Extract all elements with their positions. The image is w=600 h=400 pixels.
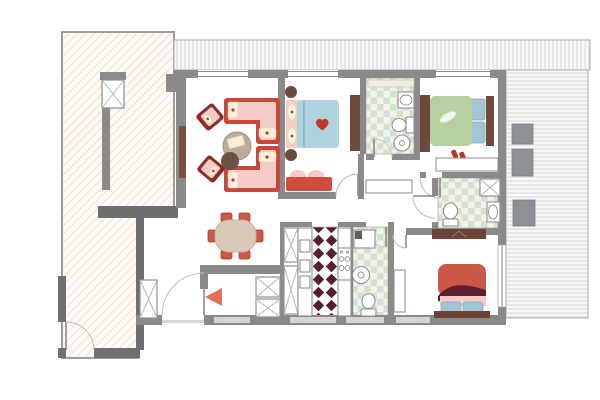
planter-box [512, 124, 533, 144]
wardrobe [350, 95, 360, 151]
entrance-arrow [205, 288, 222, 306]
shelf [368, 80, 414, 87]
dining-area [208, 213, 263, 259]
deck-top [174, 40, 590, 70]
dining-table [215, 220, 256, 252]
shower-stall [480, 179, 500, 196]
round-side-table [221, 152, 239, 170]
kitchen-floor [312, 227, 338, 316]
bedroom-blue [285, 86, 360, 191]
nightstand [285, 149, 297, 161]
closet [256, 277, 280, 297]
double-bed-feather [430, 96, 494, 146]
window [198, 70, 248, 78]
armchair [195, 102, 225, 131]
tall-cabinet [284, 228, 298, 262]
terrace-left [58, 32, 178, 358]
living-room [179, 98, 280, 192]
terrace-bottom-wall-b [94, 348, 140, 358]
bench-loveseat [286, 170, 332, 191]
terrace-bottom-wall-a [58, 348, 66, 358]
wardrobe [420, 95, 430, 152]
floorplan-svg [0, 0, 600, 400]
stove-4-burner [338, 248, 351, 280]
sink [398, 92, 414, 108]
closet-rail [436, 158, 498, 171]
deck-right [506, 70, 588, 318]
sink [487, 202, 500, 222]
bidet [394, 135, 410, 151]
terrace-separator-wall [98, 206, 178, 218]
bedroom-green [420, 95, 498, 171]
bathroom-ensuite-door [413, 196, 435, 218]
terrace-left-accent [58, 276, 66, 322]
radiator [394, 270, 405, 312]
balcony-door [498, 245, 506, 307]
nightstand [285, 86, 297, 98]
closet [140, 280, 157, 318]
tall-cabinet [284, 266, 298, 314]
planter-box [512, 149, 533, 176]
double-bed-red [434, 264, 490, 318]
entry-door [162, 273, 204, 323]
window [288, 70, 338, 78]
counter-unit [354, 230, 375, 248]
wall-tv [179, 126, 186, 178]
terrace-wall-fin [102, 108, 110, 190]
bedroom-master [394, 229, 490, 318]
shaft-cap [100, 72, 126, 80]
toilet [392, 117, 414, 133]
toilet [443, 203, 458, 226]
window [436, 70, 490, 78]
washing-machine [353, 267, 370, 284]
bedroom-blue-door [336, 174, 358, 196]
closet [256, 299, 280, 317]
hall-closet-rail [366, 180, 412, 193]
bedroom-master-door [393, 235, 406, 248]
double-bed-heart-pillow [286, 100, 339, 148]
floorplan-canvas [0, 0, 600, 400]
toilet [361, 294, 376, 317]
media-console [432, 229, 486, 239]
planter-box [513, 200, 535, 226]
